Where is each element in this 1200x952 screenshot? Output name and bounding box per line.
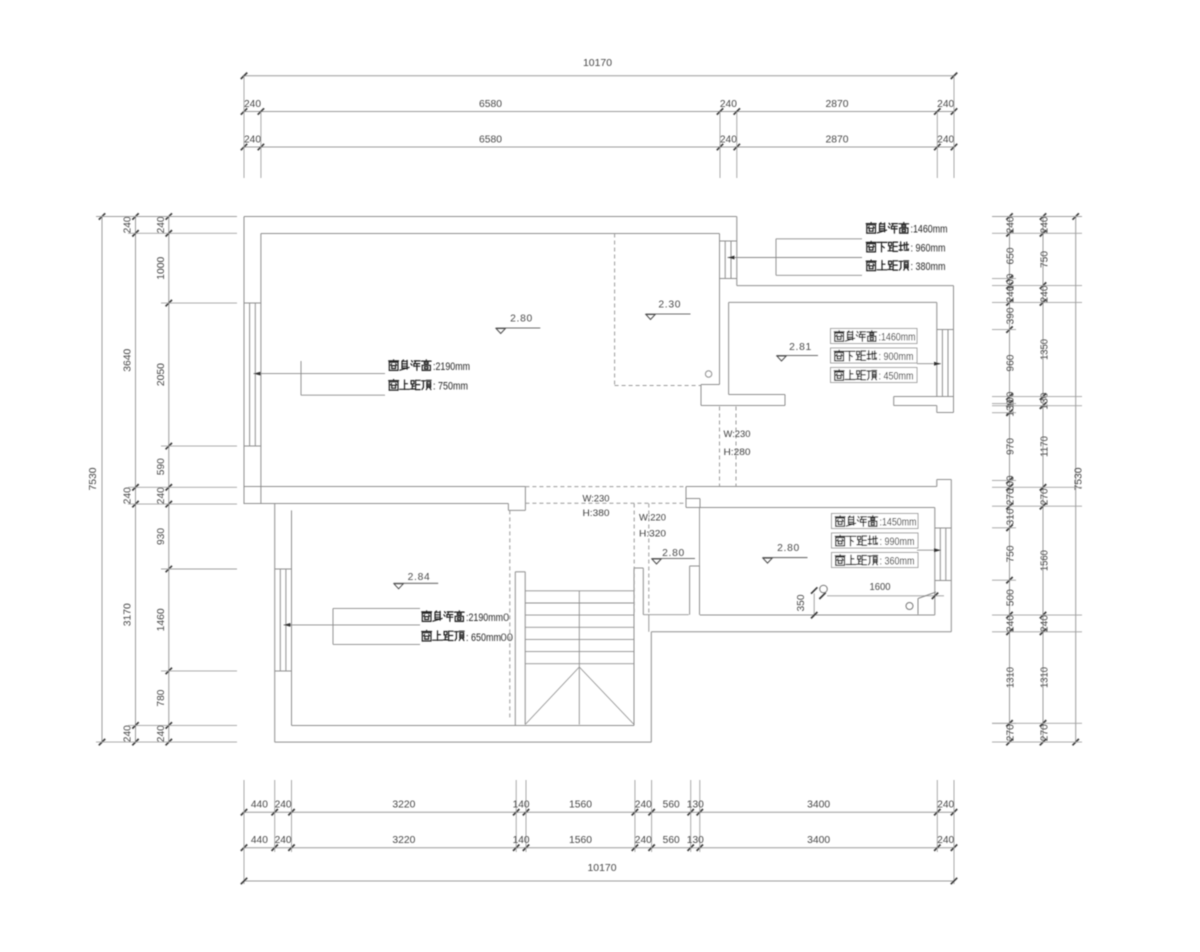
svg-text:240: 240 (1006, 285, 1017, 302)
svg-text:560: 560 (663, 800, 680, 811)
svg-text:3220: 3220 (392, 835, 415, 846)
svg-text:240: 240 (275, 800, 292, 811)
svg-text:2.81: 2.81 (789, 342, 812, 353)
svg-text:240: 240 (937, 800, 954, 811)
svg-text:2.80: 2.80 (662, 548, 685, 559)
svg-text:240: 240 (244, 135, 261, 146)
svg-text:240: 240 (275, 835, 292, 846)
svg-text::1460mm: :1460mm (879, 332, 916, 344)
svg-text:3400: 3400 (807, 835, 830, 846)
svg-text:240: 240 (937, 99, 954, 110)
svg-text:930: 930 (156, 528, 167, 545)
svg-text:H:380: H:380 (583, 508, 610, 519)
svg-text:240: 240 (1040, 285, 1051, 302)
svg-text:240: 240 (156, 216, 167, 233)
svg-text:10170: 10170 (583, 58, 612, 69)
svg-text:140: 140 (513, 835, 530, 846)
svg-text:240: 240 (1040, 216, 1051, 233)
svg-text:130: 130 (687, 835, 704, 846)
svg-text:: 750mm: : 750mm (433, 381, 468, 393)
svg-text:1350: 1350 (1040, 339, 1051, 360)
svg-text:960: 960 (1006, 354, 1017, 371)
svg-text:240: 240 (123, 725, 134, 742)
svg-text:130: 130 (1006, 399, 1017, 416)
svg-text:130: 130 (1040, 392, 1051, 409)
svg-text:2.84: 2.84 (408, 572, 431, 583)
svg-text:440: 440 (251, 800, 268, 811)
svg-text:440: 440 (251, 835, 268, 846)
svg-text:00: 00 (501, 632, 514, 644)
svg-text:780: 780 (156, 689, 167, 706)
svg-text:7530: 7530 (88, 467, 99, 490)
svg-text:1170: 1170 (1040, 436, 1051, 457)
svg-text::2190mm: :2190mm (466, 612, 503, 624)
svg-text:270: 270 (1006, 724, 1017, 741)
svg-text:: 650mm: : 650mm (466, 632, 501, 644)
svg-text:6580: 6580 (479, 135, 502, 146)
svg-text:130: 130 (687, 800, 704, 811)
svg-text:2.80: 2.80 (510, 314, 533, 325)
svg-text:240: 240 (156, 725, 167, 742)
svg-text:240: 240 (720, 99, 737, 110)
svg-text:: 990mm: : 990mm (880, 536, 915, 548)
svg-text:240: 240 (1006, 216, 1017, 233)
svg-text:750: 750 (1006, 545, 1017, 562)
svg-text:2.30: 2.30 (658, 299, 681, 310)
svg-text:240: 240 (937, 835, 954, 846)
svg-text:140: 140 (513, 800, 530, 811)
svg-text:1000: 1000 (156, 256, 167, 279)
svg-text:1600: 1600 (870, 582, 891, 593)
svg-text:240: 240 (635, 800, 652, 811)
svg-text:590: 590 (156, 458, 167, 475)
svg-text::1450mm: :1450mm (880, 517, 917, 529)
svg-text:1560: 1560 (569, 835, 592, 846)
svg-text:240: 240 (244, 99, 261, 110)
svg-text:350: 350 (796, 594, 807, 611)
svg-text::1460mm: :1460mm (911, 224, 948, 236)
svg-text:: 960mm: : 960mm (911, 243, 946, 255)
svg-text:: 900mm: : 900mm (879, 351, 914, 363)
svg-text:240: 240 (937, 135, 954, 146)
svg-text:2050: 2050 (156, 363, 167, 386)
svg-text:240: 240 (635, 835, 652, 846)
svg-text:240: 240 (1040, 615, 1051, 632)
svg-text:2870: 2870 (826, 135, 849, 146)
svg-text:W:220: W:220 (639, 513, 666, 524)
svg-text:10170: 10170 (588, 863, 617, 874)
svg-text:0: 0 (503, 612, 509, 624)
svg-text:270: 270 (1006, 488, 1017, 505)
svg-text:H:280: H:280 (724, 447, 751, 458)
svg-text:1460: 1460 (156, 608, 167, 631)
svg-text:1310: 1310 (1006, 667, 1017, 688)
svg-text:3640: 3640 (123, 348, 134, 371)
svg-text:270: 270 (1040, 488, 1051, 505)
svg-text:3400: 3400 (807, 800, 830, 811)
svg-text:650: 650 (1006, 247, 1017, 264)
svg-text:2.80: 2.80 (777, 543, 800, 554)
svg-text:: 360mm: : 360mm (880, 556, 915, 568)
svg-text:240: 240 (123, 487, 134, 504)
svg-text:W:230: W:230 (724, 429, 751, 440)
svg-text:3220: 3220 (392, 800, 415, 811)
svg-text:240: 240 (720, 135, 737, 146)
svg-text::2190mm: :2190mm (433, 361, 470, 373)
svg-text:1560: 1560 (1040, 550, 1051, 571)
svg-text:1310: 1310 (1040, 667, 1051, 688)
svg-text:970: 970 (1006, 438, 1017, 455)
svg-text:240: 240 (156, 487, 167, 504)
svg-text:240: 240 (1006, 615, 1017, 632)
svg-text:: 450mm: : 450mm (879, 371, 914, 383)
svg-text:3170: 3170 (123, 603, 134, 626)
svg-text:240: 240 (123, 216, 134, 233)
svg-text:: 380mm: : 380mm (911, 261, 946, 273)
svg-text:750: 750 (1040, 251, 1051, 268)
svg-text:390: 390 (1006, 307, 1017, 324)
svg-text:H:320: H:320 (639, 529, 666, 540)
svg-text:270: 270 (1040, 724, 1051, 741)
svg-text:310: 310 (1006, 508, 1017, 525)
svg-text:560: 560 (663, 835, 680, 846)
svg-text:6580: 6580 (479, 99, 502, 110)
svg-text:2870: 2870 (826, 99, 849, 110)
svg-text:500: 500 (1006, 589, 1017, 606)
svg-text:1560: 1560 (569, 800, 592, 811)
svg-text:W:230: W:230 (583, 494, 610, 505)
